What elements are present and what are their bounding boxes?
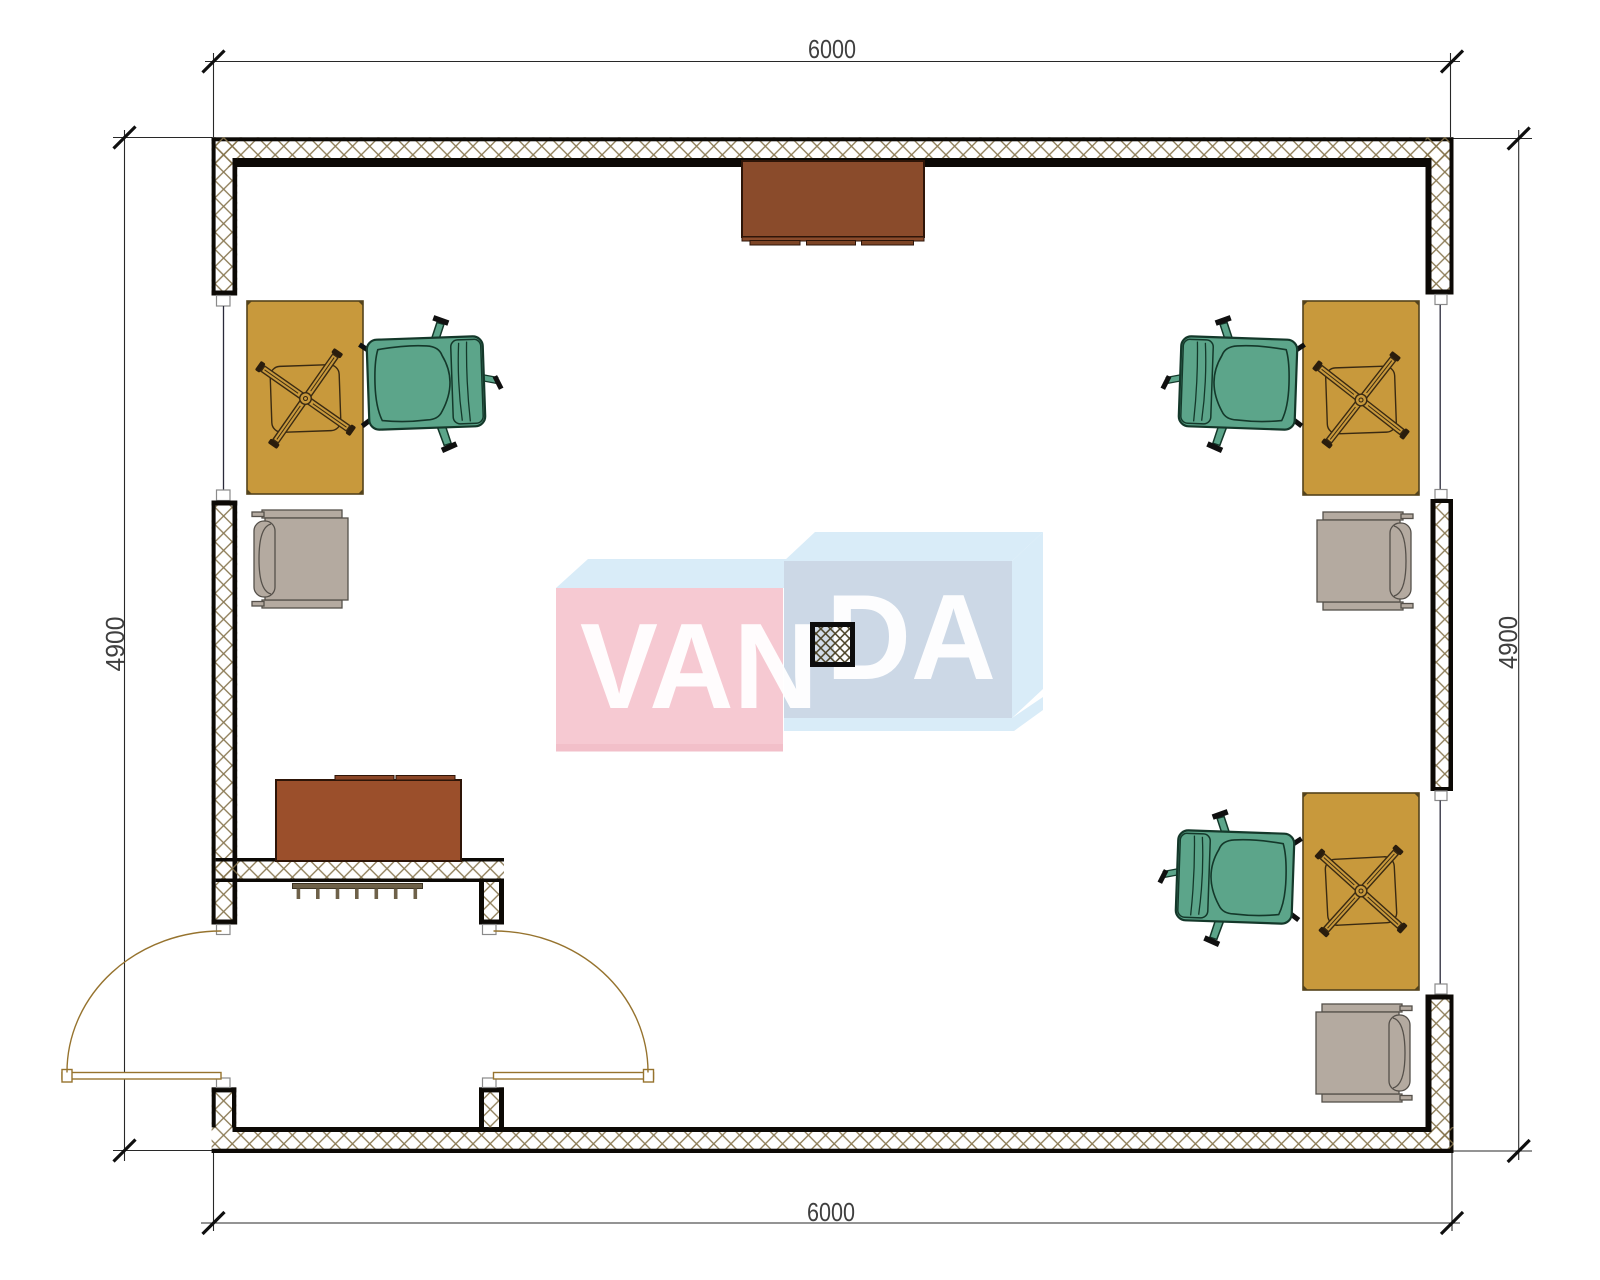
svg-text:6000: 6000 bbox=[807, 1197, 855, 1227]
svg-text:4900: 4900 bbox=[100, 617, 130, 672]
svg-text:6000: 6000 bbox=[808, 34, 856, 64]
svg-text:VAN: VAN bbox=[580, 598, 818, 734]
svg-text:4900: 4900 bbox=[1493, 616, 1523, 669]
